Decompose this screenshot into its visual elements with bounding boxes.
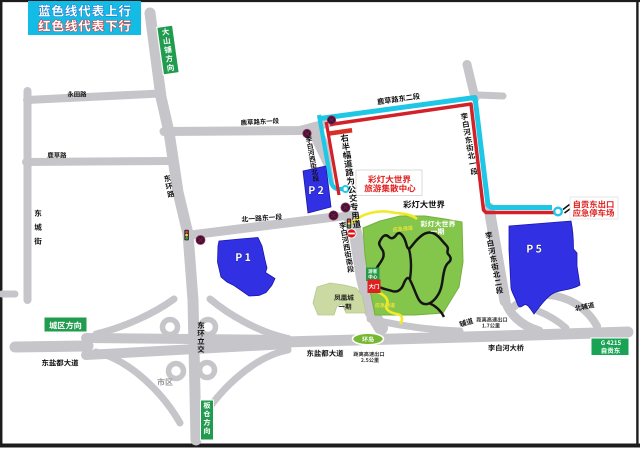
svg-text:永田路: 永田路 <box>67 90 87 99</box>
svg-text:应急通道: 应急通道 <box>375 302 395 309</box>
svg-text:彩灯大世界: 彩灯大世界 <box>403 199 445 211</box>
svg-text:P 2: P 2 <box>308 183 324 198</box>
svg-text:东环立交: 东环立交 <box>197 320 205 355</box>
svg-text:2.5公里: 2.5公里 <box>361 357 379 364</box>
svg-text:城区方向: 城区方向 <box>49 320 82 332</box>
svg-text:大门: 大门 <box>369 283 380 291</box>
svg-text:旅游集散中心: 旅游集散中心 <box>364 183 416 195</box>
svg-text:东城街: 东城街 <box>34 208 42 247</box>
svg-text:市区: 市区 <box>157 377 173 388</box>
svg-text:一期: 一期 <box>431 227 445 237</box>
svg-text:李白河大桥: 李白河大桥 <box>488 344 525 354</box>
svg-text:P 1: P 1 <box>235 250 251 265</box>
svg-text:鹿草路: 鹿草路 <box>47 151 67 160</box>
svg-text:东盐都大道: 东盐都大道 <box>307 348 345 359</box>
svg-text:一期: 一期 <box>338 301 352 311</box>
svg-text:环岛: 环岛 <box>362 335 374 344</box>
svg-text:红色线代表下行: 红色线代表下行 <box>38 16 132 35</box>
svg-text:P 5: P 5 <box>526 242 542 257</box>
svg-text:应急停车场: 应急停车场 <box>573 207 615 219</box>
svg-text:自贡东: 自贡东 <box>601 345 621 355</box>
svg-text:板仓方向: 板仓方向 <box>203 401 211 437</box>
svg-text:东盐都大道: 东盐都大道 <box>42 358 80 369</box>
svg-text:游客中心: 游客中心 <box>368 269 378 281</box>
svg-text:1.7公里: 1.7公里 <box>482 323 500 330</box>
